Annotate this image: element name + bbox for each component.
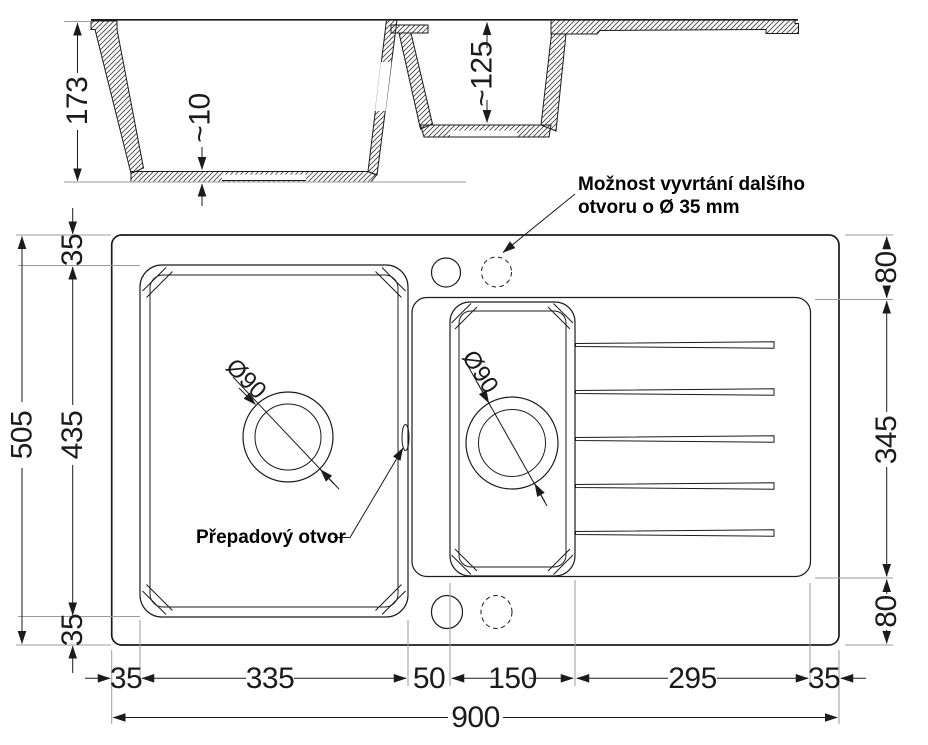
dim-label-80-bottom: 80 xyxy=(870,595,903,627)
drawing-canvas: 173 ~10 ~125 xyxy=(0,0,928,745)
dim-label-150: 150 xyxy=(488,662,537,695)
dim-label-335: 335 xyxy=(246,662,295,695)
background xyxy=(0,0,928,745)
dim-label-35-top: 35 xyxy=(56,234,89,266)
annotation-extra-hole-line1: Možnost vyvrtání dalšího xyxy=(578,174,805,195)
annotation-overflow-label: Přepadový otvor xyxy=(196,527,347,548)
dim-label-50: 50 xyxy=(413,662,445,695)
dim-label-35-bottom-left: 35 xyxy=(56,614,89,646)
section-divider-flange xyxy=(391,25,428,33)
dim-label-35-rim-left: 35 xyxy=(110,662,142,695)
sink-technical-drawing: 173 ~10 ~125 xyxy=(0,0,928,745)
annotation-extra-hole-line2: otvoru o Ø 35 mm xyxy=(578,197,740,218)
dim-label-35-rim-right: 35 xyxy=(808,662,840,695)
dim-label-345: 345 xyxy=(870,416,903,465)
dim-label-900: 900 xyxy=(451,701,500,734)
dim-label-295: 295 xyxy=(668,662,717,695)
dim-label-125: ~125 xyxy=(466,41,499,107)
dim-label-10: ~10 xyxy=(184,93,217,142)
dim-label-173: 173 xyxy=(61,77,94,126)
dim-label-80-top: 80 xyxy=(870,251,903,283)
section-small-drain-recess xyxy=(450,131,517,137)
dim-label-505: 505 xyxy=(6,411,39,460)
dim-label-435: 435 xyxy=(56,411,89,460)
